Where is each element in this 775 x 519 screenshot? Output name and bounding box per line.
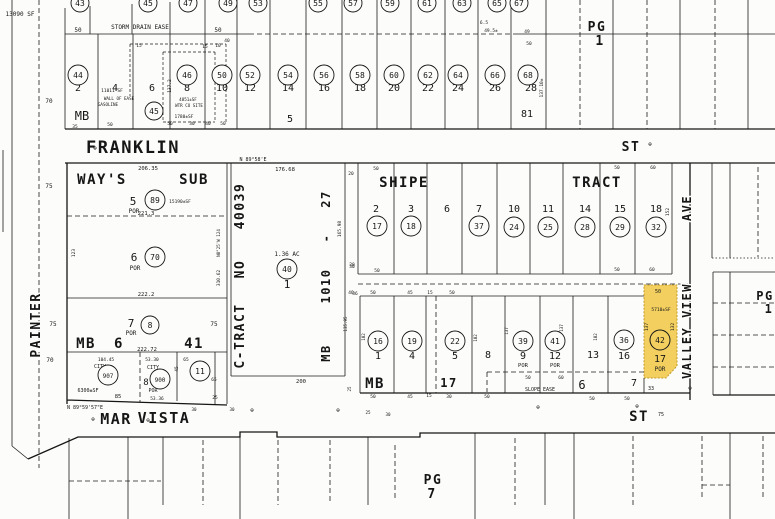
dimension-label: 50 (589, 396, 595, 402)
assessor-parcel-circle: 44 (68, 65, 88, 85)
dimension-label: 60 (650, 165, 656, 171)
dimension-label: STORM DRAIN EASE (111, 24, 169, 31)
dimension-label: 30 (385, 412, 391, 417)
dimension-label: 6300±SF (77, 388, 98, 394)
dimension-label: 45 (407, 394, 413, 400)
tract-label-tract: TRACT (572, 175, 622, 191)
assessor-parcel-circle: 61 (418, 0, 436, 12)
mapbook-label-mb6-41: 41 (184, 336, 204, 352)
assessor-parcel-circle: 63 (453, 0, 471, 12)
tract-label-no: NO (233, 260, 248, 279)
highlighted-parcel-dim-left: 137 (644, 323, 650, 332)
dimension-label: 50 (525, 375, 531, 381)
dimension-label: 40 (205, 121, 211, 127)
dimension-label: POR (518, 363, 529, 369)
highlighted-parcel-lot: 17 (654, 354, 666, 365)
dimension-label: 70 (46, 357, 54, 364)
assessor-parcel-number: 32 (651, 223, 661, 232)
assessor-parcel-number: 25 (543, 223, 553, 232)
dimension-label: 50 (370, 290, 376, 296)
dimension-label: 10 (215, 43, 221, 49)
dimension-label: 70 (45, 98, 53, 105)
assessor-parcel-number: 22 (450, 337, 460, 346)
assessor-parcel-number: 64 (453, 71, 463, 80)
dimension-label: 50 (74, 27, 82, 34)
assessor-parcel-number: 58 (355, 71, 365, 80)
lot-number: 8 (485, 350, 491, 361)
assessor-parcel-circle: 40 (277, 259, 297, 279)
assessor-parcel-circle: 49 (219, 0, 237, 12)
street-label-valley-view-ave: AVE (680, 195, 694, 221)
assessor-parcel-circle: 16 (368, 331, 388, 351)
dimension-label: 1.36 AC (274, 251, 300, 258)
assessor-parcel-number: 89 (150, 196, 160, 205)
monument-icon: ⊕ (635, 403, 639, 410)
assessor-parcel-circle: 64 (448, 65, 468, 85)
assessor-parcel-number: 900 (155, 377, 166, 384)
assessor-parcel-circle: 67 (510, 0, 528, 12)
dimension-label: 102 (593, 333, 598, 341)
assessor-parcel-number: 70 (150, 253, 160, 262)
assessor-parcel-number: 59 (385, 0, 395, 8)
assessor-parcel-number: 19 (407, 337, 417, 346)
assessor-parcel-circle: 57 (344, 0, 362, 12)
assessor-parcel-circle: 53 (249, 0, 267, 12)
lot-number: 9 (520, 351, 526, 362)
assessor-parcel-number: 39 (518, 337, 528, 346)
dimension-label: 35 (72, 124, 78, 130)
street-label-mar: MAR (100, 410, 132, 428)
plat-map-canvas: FRANKLIN ST MAR VISTA ST PAINTER VALLEY … (0, 0, 775, 519)
assessor-parcel-circle: 62 (418, 65, 438, 85)
dimension-label: 222.2 (138, 292, 155, 298)
dimension-label: 25 (212, 395, 218, 401)
tract-label-sub: SUB (179, 172, 209, 188)
assessor-parcel-circle: 47 (179, 0, 197, 12)
assessor-parcel-number: 61 (422, 0, 432, 8)
page-ref-top-pg: PG (588, 20, 607, 35)
assessor-parcel-number: 29 (615, 223, 625, 232)
dimension-label: 20 (349, 262, 355, 268)
mapbook-label-mb6-num: 6 (114, 336, 124, 352)
dimension-label: MB (75, 109, 89, 123)
assessor-parcel-circle: 45 (139, 0, 157, 12)
page-ref-bottom-num: 7 (427, 487, 436, 502)
dimension-label: 50 (370, 394, 376, 400)
dimension-label: 25 (347, 386, 352, 392)
lot-number: 12 (549, 351, 561, 362)
lot-number: 5 (130, 195, 137, 208)
assessor-parcel-circle: 70 (145, 247, 165, 267)
monument-icon: ⊕ (250, 407, 254, 414)
tract-label-ctract: C-TRACT (233, 303, 248, 368)
dimension-label: 165.98 (337, 221, 343, 238)
dimension-label: 40 (348, 290, 354, 296)
dimension-label: 49.5± (484, 28, 498, 34)
parcel-circles: 4345474953555759616365674446505254565860… (68, 0, 666, 389)
lot-number: 6 (578, 378, 585, 392)
dimension-label: 50 (526, 41, 532, 47)
dimension-label: 137 (504, 327, 509, 335)
assessor-parcel-circle: 17 (367, 216, 387, 236)
monument-icon: ⊕ (336, 407, 340, 414)
assessor-parcel-number: 16 (373, 337, 383, 346)
dimension-label: 6.5 (480, 20, 488, 26)
lot-number: 6 (444, 204, 450, 215)
highlighted-parcel-number: 42 (655, 336, 665, 345)
dimension-label: 65 (211, 377, 217, 383)
lot-number: 4 (112, 83, 118, 94)
lot-number: 8 (143, 378, 148, 388)
assessor-parcel-circle: 89 (145, 190, 165, 210)
dimension-label: 123 (71, 249, 77, 257)
dimension-label: 50 (214, 27, 222, 34)
highlighted-parcel-dim-bottom: 33 (648, 386, 654, 392)
dimension-label: POR (126, 330, 137, 337)
dimension-label: 135.95 (343, 316, 348, 332)
assessor-parcel-number: 47 (183, 0, 193, 8)
dimension-label: WTR CO SITE (175, 103, 203, 108)
assessor-parcel-circle: 66 (485, 65, 505, 85)
dimension-label: 53.36 (150, 396, 164, 402)
dimension-label: 176.68 (275, 167, 295, 173)
dimension-label: 15 (136, 43, 142, 49)
tract-label-shipe: SHIPE (379, 175, 429, 191)
assessor-parcel-number: 11 (195, 367, 205, 376)
dimension-label: 50 (107, 122, 113, 128)
dimension-label: 1780±SF (175, 114, 194, 120)
dimension-label: 75 (45, 183, 53, 190)
dimension-label: 45 (174, 366, 180, 372)
lot-number: 11 (542, 204, 554, 215)
assessor-parcel-circle: 36 (614, 330, 634, 350)
assessor-parcel-number: 41 (550, 337, 560, 346)
assessor-parcel-circle: 32 (646, 217, 666, 237)
street-label-painter: PAINTER (29, 292, 44, 357)
lot-number: 6 (149, 83, 155, 94)
street-label-mar-vista-st: ST (629, 409, 649, 425)
dimension-label: 25 (365, 410, 371, 415)
dimension-label: 30 (191, 407, 197, 412)
assessor-parcel-number: 36 (619, 336, 629, 345)
dimension-label: 50 (374, 268, 380, 274)
dimension-label: 85 (115, 394, 122, 400)
lot-number: 16 (618, 351, 630, 362)
dimension-labels: 13090 SFSTORM DRAIN EASE5050151510406.54… (6, 11, 671, 418)
dimension-label: 152 (665, 208, 671, 216)
mapbook-label-dash: - (319, 234, 333, 243)
dimension-label: 60 (649, 267, 655, 273)
assessor-parcel-circle: 60 (384, 65, 404, 85)
assessor-parcel-number: 907 (103, 373, 114, 380)
assessor-parcel-circle: 37 (469, 216, 489, 236)
dimension-label: 50 (614, 165, 620, 171)
lot-number: 18 (650, 204, 662, 215)
assessor-parcel-circle: 18 (401, 216, 421, 236)
assessor-parcel-circle: 65 (488, 0, 506, 12)
dimension-label: 221.3 (138, 211, 155, 217)
dimension-label: 50 (624, 396, 630, 402)
lot-number: 14 (579, 204, 591, 215)
dimension-label: 50 (167, 121, 173, 127)
highlighted-parcel-dim-top: 50 (655, 289, 661, 295)
dimension-label: 222.72 (137, 347, 157, 353)
monument-icon: ⊕ (536, 404, 540, 411)
lot-number: 5 (287, 114, 293, 125)
assessor-parcel-circle: 59 (381, 0, 399, 12)
assessor-parcel-number: 18 (406, 222, 416, 231)
assessor-parcel-circle: 54 (278, 65, 298, 85)
dimension-label: 40 (224, 38, 230, 44)
assessor-parcel-number: 45 (143, 0, 153, 8)
dimension-label: 50 (449, 290, 455, 296)
assessor-parcel-number: 65 (492, 0, 502, 8)
dimension-label: 75 (49, 321, 57, 328)
dimension-label: 137 (559, 324, 564, 332)
dimension-label: 45 (407, 290, 413, 296)
assessor-parcel-circle: 39 (513, 331, 533, 351)
street-label-franklin: FRANKLIN (86, 138, 180, 158)
assessor-parcel-circle: 46 (177, 65, 197, 85)
lot-number: 7 (476, 204, 482, 215)
dimension-label: 104.45 (98, 357, 115, 363)
dimension-label: 137.2 (167, 79, 173, 93)
assessor-parcel-number: 53 (253, 0, 263, 8)
lot-number: 13 (587, 350, 599, 361)
assessor-parcel-number: 67 (514, 0, 524, 8)
dimension-label: WALL OF EASE (104, 96, 135, 101)
assessor-parcel-circle: 50 (212, 65, 232, 85)
dimension-label: 102 (361, 333, 366, 341)
dimension-label: 50 (614, 267, 620, 273)
assessor-parcel-circle: 900 (150, 369, 170, 389)
assessor-parcel-circle: 22 (445, 331, 465, 351)
assessor-parcel-number: 52 (245, 71, 255, 80)
highlighted-parcel-area: 5710±SF (651, 307, 671, 313)
highlighted-parcel-por: POR (655, 366, 666, 373)
dimension-label: 53.30 (145, 357, 159, 363)
assessor-parcel-number: 28 (580, 223, 590, 232)
mapbook-label-mb17-num: 17 (440, 376, 457, 390)
dimension-label: 15 (202, 44, 208, 50)
dimension-label: 60 (558, 375, 564, 381)
dimension-label: 13090 SF (6, 11, 35, 18)
assessor-parcel-circle: 8 (141, 316, 159, 334)
monument-icon: ⊕ (688, 385, 692, 392)
assessor-parcel-number: 55 (313, 0, 323, 8)
mapbook-label-1010: 1010 (319, 269, 333, 304)
assessor-parcel-number: 44 (73, 71, 83, 80)
dimension-label: 200 (296, 379, 306, 385)
assessor-parcel-number: 43 (75, 0, 85, 8)
mapbook-label-mb: MB (319, 344, 333, 361)
mapbook-label-mb6: MB (76, 336, 96, 352)
dimension-label: POR (550, 363, 561, 369)
tract-label-40039: 40039 (233, 183, 248, 230)
assessor-parcel-circle: 19 (402, 331, 422, 351)
lot-number: 15 (614, 204, 626, 215)
dimension-label: 75 (658, 412, 664, 418)
mapbook-label-mb17-mb: MB (365, 376, 385, 392)
assessor-parcel-circle: 55 (309, 0, 327, 12)
page-ref-right-num: 1 (765, 302, 774, 316)
assessor-parcel-number: 56 (319, 71, 329, 80)
monument-icon: ⊕ (648, 141, 652, 148)
street-label-franklin-st: ST (622, 140, 641, 155)
dimension-label: 30 (189, 121, 195, 127)
assessor-parcel-number: 68 (523, 71, 533, 80)
assessor-parcel-circle: 907 (98, 365, 118, 385)
dimension-label: 20 (348, 171, 354, 177)
assessor-parcel-number: 8 (148, 321, 153, 330)
assessor-plat-map: FRANKLIN ST MAR VISTA ST PAINTER VALLEY … (0, 0, 775, 519)
mapbook-label-27: 27 (319, 190, 333, 207)
assessor-parcel-number: 17 (372, 222, 382, 231)
assessor-parcel-number: 37 (474, 222, 484, 231)
highlighted-parcel-dim-right: 132 (670, 323, 676, 332)
lot-number: 3 (408, 204, 414, 215)
page-ref-right-pg: PG (756, 289, 773, 303)
assessor-parcel-number: 66 (490, 71, 500, 80)
assessor-parcel-number: 57 (348, 0, 358, 8)
assessor-parcel-circle: 24 (504, 217, 524, 237)
assessor-parcel-number: 63 (457, 0, 467, 8)
page-ref-bottom-pg: PG (424, 473, 443, 488)
dimension-label: 30 (446, 394, 452, 400)
lot-number: 10 (508, 204, 520, 215)
assessor-parcel-circle: 25 (538, 217, 558, 237)
lot-number: 7 (128, 317, 135, 330)
lot-number: 1 (375, 351, 381, 362)
dimension-label: 137.10± (539, 78, 545, 97)
assessor-parcel-number: 50 (217, 71, 227, 80)
assessor-parcel-number: 62 (423, 71, 433, 80)
page-labels: PG 1 PG 1 PG 7 (424, 20, 774, 502)
monument-icon: ⊕ (146, 417, 150, 424)
assessor-parcel-number: 24 (509, 223, 519, 232)
assessor-parcel-circle: 56 (314, 65, 334, 85)
lot-number: 81 (521, 109, 533, 120)
dimension-label: 15190±SF (169, 199, 191, 205)
lot-number: 7 (631, 378, 637, 389)
dimension-label: 4851±SF (179, 97, 197, 102)
assessor-parcel-number: 40 (282, 265, 292, 274)
assessor-parcel-circle: 58 (350, 65, 370, 85)
assessor-parcel-number: 49 (223, 0, 233, 8)
dimension-label: GASOLINE (98, 102, 119, 107)
assessor-parcel-circle: 41 (545, 331, 565, 351)
dimension-label: 50 (373, 166, 379, 172)
page-ref-top-num: 1 (595, 34, 604, 49)
dimension-label: 50 (220, 121, 226, 127)
assessor-parcel-circle: 29 (610, 217, 630, 237)
dimension-label: 15 (426, 393, 432, 399)
dimension-label: SLOPE EASE (525, 387, 555, 393)
lot-number: 5 (452, 351, 458, 362)
tract-label-ways: WAY'S (77, 172, 127, 188)
dimension-label: 310.62 (216, 270, 222, 287)
dimension-label: N 89°58'E (239, 157, 266, 163)
lot-number: 1 (284, 278, 291, 291)
assessor-parcel-circle: 11 (190, 361, 210, 381)
dimension-label: 30 (229, 407, 235, 412)
monument-icon: ⊕ (93, 145, 97, 152)
monument-icon: ⊕ (91, 416, 95, 423)
assessor-parcel-circle: 28 (575, 217, 595, 237)
dimension-label: 206.35 (138, 166, 158, 172)
dimension-label: 65 (183, 357, 189, 363)
dimension-label: N 89°59'57"E (67, 405, 103, 411)
dimension-label: 50 (484, 394, 490, 400)
lot-number: 6 (131, 251, 138, 264)
assessor-parcel-circle: 43 (71, 0, 89, 12)
lot-number: 4 (409, 351, 415, 362)
dimension-label: 49 (524, 29, 530, 35)
dimension-label: 102 (473, 334, 478, 342)
assessor-parcel-circle: 45 (145, 102, 163, 120)
assessor-parcel-circle: 68 (518, 65, 538, 85)
assessor-parcel-number: 60 (389, 71, 399, 80)
street-label-valley-view: VALLEY VIEW (680, 283, 694, 379)
dimension-label: N0°25'W 124 (216, 229, 221, 257)
assessor-parcel-number: 54 (283, 71, 293, 80)
dimension-label: POR (130, 265, 141, 272)
dimension-label: 75 (210, 321, 218, 328)
dimension-label: 15 (427, 290, 433, 296)
assessor-parcel-number: 45 (149, 107, 159, 116)
assessor-parcel-circle: 52 (240, 65, 260, 85)
assessor-parcel-number: 46 (182, 71, 192, 80)
lot-number: 2 (373, 204, 379, 215)
